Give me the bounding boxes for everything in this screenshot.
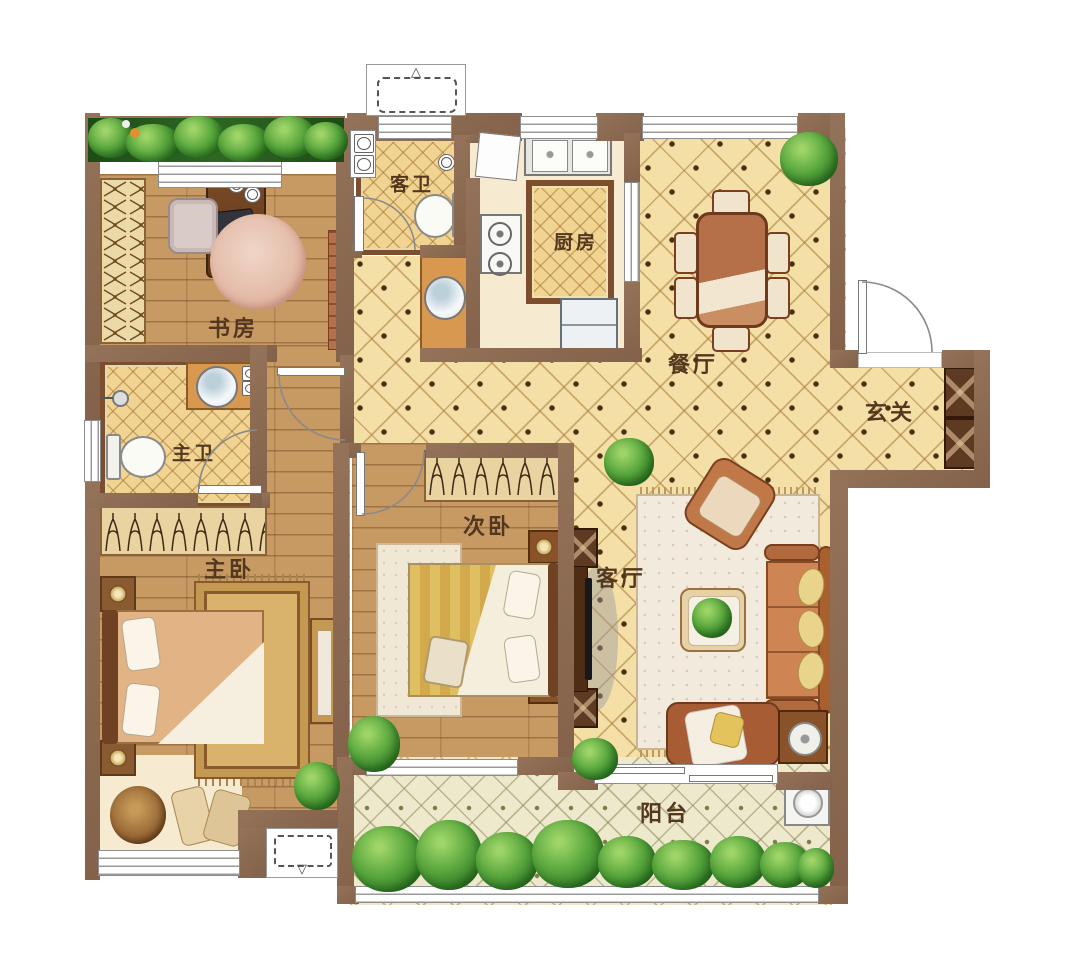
- bed-fold: [158, 642, 264, 744]
- refrigerator: [560, 298, 618, 354]
- dining-chair: [766, 232, 790, 274]
- flower-dot: [130, 128, 140, 138]
- balcony-sliding-door: [594, 764, 778, 784]
- pillow: [121, 616, 162, 672]
- room-label-entry: 玄关: [865, 395, 915, 427]
- room-label-second-bedroom: 次卧: [463, 509, 513, 541]
- ac-platform-dashed-outline: [377, 77, 457, 113]
- headboard: [102, 610, 118, 744]
- balcony-plant: [532, 820, 604, 888]
- balcony-plant: [476, 832, 538, 890]
- second-bedroom-door-leaf: [356, 452, 365, 516]
- planter-bush: [304, 122, 348, 160]
- wall: [830, 470, 990, 488]
- stove-burner-icon: [488, 222, 512, 246]
- potted-plant: [348, 716, 400, 772]
- coffee-table-plant: [692, 598, 732, 638]
- pillow: [503, 634, 541, 684]
- potted-plant: [572, 738, 618, 780]
- balcony-plant: [416, 820, 482, 890]
- wall: [830, 350, 858, 368]
- nightstand: [100, 740, 136, 776]
- wash-basin-icon: [424, 276, 466, 320]
- kitchen-door-leaf: [475, 132, 521, 181]
- balcony-railing-window: [355, 886, 819, 903]
- bookshelf-books-icon: [102, 180, 144, 342]
- wall: [426, 443, 574, 458]
- shoe-cabinet: [944, 418, 976, 469]
- dining-window: [642, 116, 798, 139]
- dried-plant-decor: [110, 786, 166, 844]
- wall: [818, 886, 848, 904]
- round-rug: [210, 214, 306, 310]
- wall: [238, 810, 338, 828]
- balcony-plant: [598, 836, 656, 888]
- washer-drum-icon: [793, 788, 823, 818]
- chaise-lounge: [666, 702, 780, 766]
- bookshelf: [100, 178, 146, 344]
- hangers-icon: [102, 508, 265, 554]
- wall: [85, 345, 277, 362]
- dining-chair: [674, 277, 698, 319]
- sofa: [764, 544, 836, 716]
- armchair-cushion: [696, 473, 764, 540]
- guest-bath-door-leaf: [354, 196, 364, 252]
- room-label-study: 书房: [208, 311, 258, 343]
- wall: [85, 493, 198, 508]
- planter-bush: [218, 124, 270, 162]
- kitchen-window: [520, 116, 598, 139]
- guest-bath-window: [378, 116, 452, 139]
- floor-drain-icon: [438, 154, 455, 171]
- toilet-bowl-icon: [414, 194, 456, 238]
- round-basin-icon: [196, 366, 238, 408]
- room-label-living: 客厅: [596, 561, 646, 593]
- room-label-master-bedroom: 主卧: [204, 552, 254, 584]
- sliding-panel: [689, 775, 773, 782]
- pillow: [121, 682, 161, 738]
- bench-cushion: [317, 630, 332, 716]
- entry-door-leaf: [858, 280, 867, 354]
- wall: [250, 345, 267, 508]
- balcony-plant: [798, 848, 834, 888]
- balcony-plant: [710, 836, 766, 888]
- kitchen-dining-pass-door: [624, 182, 640, 282]
- master-bath-window: [84, 420, 101, 482]
- potted-plant: [604, 438, 654, 486]
- toilet-tank-icon: [106, 434, 121, 480]
- stove-burner-icon: [488, 252, 512, 276]
- wall: [624, 133, 640, 183]
- room-label-guest-bath: 客卫: [390, 170, 434, 197]
- sofa-arm: [764, 544, 820, 561]
- room-label-kitchen: 厨房: [554, 228, 598, 255]
- wall: [558, 443, 574, 774]
- hangers-icon: [426, 452, 562, 500]
- shower-head-icon: [112, 390, 129, 407]
- gas-meter-icon: [354, 134, 374, 153]
- gas-meter-icon: [354, 155, 374, 174]
- room-label-dining: 餐厅: [668, 347, 718, 379]
- window-planter: [88, 118, 344, 162]
- planter-bush: [174, 116, 224, 158]
- wardrobe-master: [100, 506, 267, 556]
- floorplan: △ ▽ 书房 客卫 厨房 餐厅 玄关 主卫 主卧 次卧 客厅 阳台: [0, 0, 1080, 978]
- ac-arrow-up-icon: △: [411, 66, 421, 79]
- sink-basin-icon: [532, 140, 568, 172]
- side-table: [778, 710, 828, 764]
- wall: [974, 350, 990, 488]
- wall: [238, 828, 268, 878]
- table-fan-icon: [788, 722, 822, 756]
- dining-table: [696, 212, 768, 328]
- shoe-cabinet: [944, 367, 976, 418]
- potted-plant: [294, 762, 340, 810]
- flower-dot: [122, 120, 130, 128]
- shower-arm-icon: [99, 397, 113, 399]
- master-bay-window: [98, 850, 240, 876]
- balcony-plant: [652, 840, 714, 890]
- wall: [85, 480, 100, 880]
- ac-platform: ▽: [266, 828, 338, 878]
- master-bath-door-leaf: [198, 485, 262, 494]
- study-window: [158, 158, 282, 188]
- wall: [337, 757, 354, 904]
- dining-chair: [766, 277, 790, 319]
- wall: [262, 493, 270, 508]
- wall: [776, 772, 832, 790]
- entry-threshold: [858, 352, 942, 368]
- desk-speaker-icon: [244, 186, 261, 203]
- wall: [420, 245, 470, 258]
- sink-basin-icon: [572, 140, 608, 172]
- ac-platform: △: [366, 64, 466, 116]
- study-door-leaf: [277, 367, 345, 376]
- ottoman: [422, 635, 470, 689]
- wall: [420, 348, 642, 362]
- wall: [466, 178, 480, 360]
- balcony-plant: [352, 826, 424, 892]
- nightstand: [100, 576, 136, 612]
- dining-chair: [674, 232, 698, 274]
- rug-fringe: [198, 778, 306, 786]
- ac-arrow-down-icon: ▽: [297, 863, 307, 876]
- room-label-master-bath: 主卫: [172, 439, 216, 466]
- potted-plant: [780, 132, 838, 186]
- wall: [830, 470, 848, 904]
- door-arc-entry: [862, 282, 932, 352]
- room-label-balcony: 阳台: [640, 796, 690, 828]
- wall: [333, 443, 349, 777]
- desk-chair: [168, 198, 218, 254]
- toilet-bowl-icon: [120, 436, 166, 478]
- nightstand: [528, 530, 560, 564]
- tv-screen-icon: [585, 578, 592, 680]
